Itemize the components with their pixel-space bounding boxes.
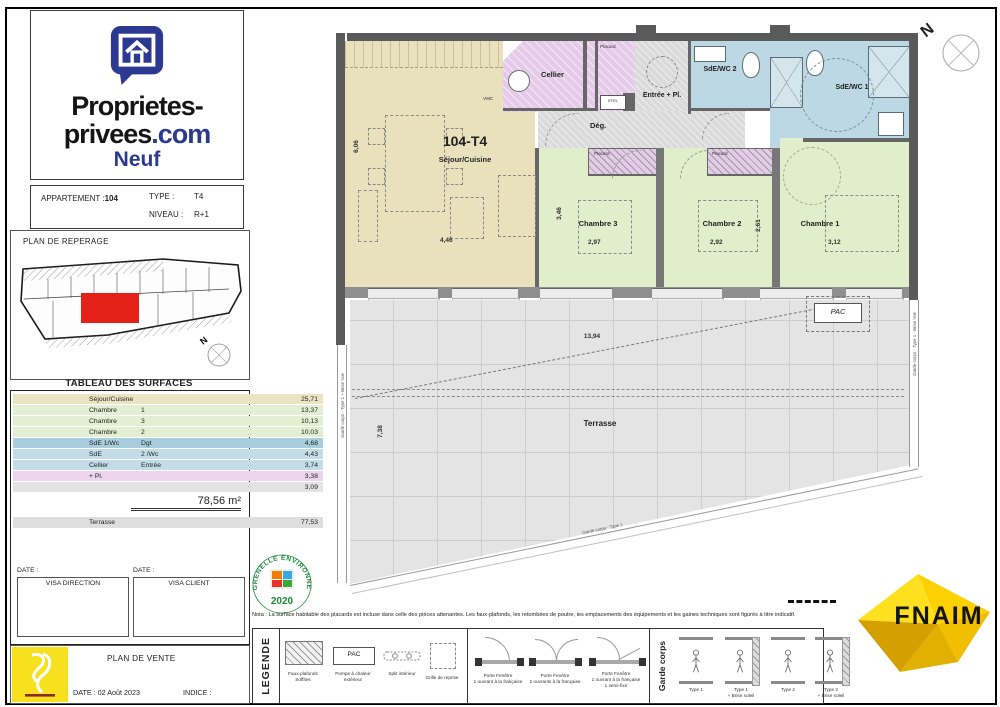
- fnaim-text: FNAIM: [882, 602, 996, 631]
- visa-direction-box: VISA DIRECTION: [17, 577, 129, 637]
- location-plan-title: PLAN DE REPERAGE: [23, 237, 109, 246]
- brise-post: [752, 637, 760, 686]
- unit-highlight: [81, 293, 139, 323]
- house-bubble-icon: [108, 23, 166, 87]
- logo-line2-main: privees: [64, 119, 152, 149]
- wall-int: [803, 138, 909, 142]
- terrace-width-dim: 13,94: [572, 333, 612, 340]
- pf1-arc: [485, 637, 510, 662]
- legend-title: LEGENDE: [260, 637, 272, 695]
- terrace-dash-line: [352, 396, 904, 397]
- mini-north-arrow: N: [198, 335, 230, 366]
- vmc-label: VMC: [483, 96, 493, 101]
- legend-box: LEGENDE Faux-plafondsSoffites PAC Pompe …: [252, 628, 824, 704]
- vent-shaft: [636, 25, 656, 33]
- gc-person: [690, 647, 702, 682]
- pf2-label: Porte Fenêtre2 ouvrants à la française: [523, 673, 587, 685]
- pf-end: [517, 658, 524, 666]
- vente-date: DATE : 02 Août 2023: [73, 688, 140, 697]
- wall-ch2-ch1: [772, 148, 780, 287]
- pf3-base: [591, 660, 643, 664]
- wall-int: [595, 41, 598, 111]
- vente-cartouche: PLAN DE VENTE DATE : 02 Août 2023 INDICE…: [10, 645, 250, 704]
- pf-end: [589, 658, 596, 666]
- surface-row: SdE2 /Wc4,43: [13, 449, 323, 459]
- grille-legend-label: Grille de reprise: [418, 675, 466, 681]
- gc-person: [824, 647, 836, 682]
- deg-label: Dég.: [590, 121, 626, 130]
- chambre1-label: Chambre 1: [788, 219, 852, 228]
- pf-end: [575, 658, 582, 666]
- wall-int: [503, 108, 598, 111]
- visa-client-date-label: DATE :: [133, 567, 154, 574]
- visa-direction-date-label: DATE :: [17, 567, 38, 574]
- visa-client-label: VISA CLIENT: [134, 578, 244, 587]
- terrasse-row: Terrasse77,53: [13, 517, 323, 528]
- surface-row: SdE 1/WcDgt4,68: [13, 438, 323, 448]
- surfaces-title: TABLEAU DES SURFACES: [10, 378, 248, 389]
- wardrobe: [358, 190, 378, 242]
- gc-title: Garde corps: [657, 641, 667, 691]
- sink: [694, 46, 726, 62]
- gc-rail: [679, 637, 713, 640]
- wall-top: [347, 33, 918, 41]
- logo-line2-accent: .com: [151, 119, 210, 149]
- pf3-fixed-leaf: [619, 648, 641, 660]
- cellier-label: Cellier: [520, 70, 585, 79]
- shower: [770, 57, 803, 108]
- sejour-h-dim: 6,06: [353, 140, 360, 153]
- apartment-number: APPARTEMENT :104: [41, 194, 118, 203]
- gc-person: [734, 647, 746, 682]
- pf-end: [639, 658, 646, 666]
- entree-label: Entrée + Pl.: [630, 92, 694, 99]
- surface-row: Séjour/Cuisine25,71: [13, 394, 323, 404]
- grille-glyph: [430, 643, 456, 669]
- gc2-label: Type 1+ Brise soleil: [715, 687, 767, 699]
- location-plan-box: PLAN DE REPERAGE: [10, 230, 250, 380]
- wall-left: [336, 33, 345, 345]
- location-mini-plan: N: [13, 249, 247, 382]
- chair: [446, 168, 463, 185]
- ch3-h-dim: 3,46: [556, 207, 563, 220]
- architect-logo: [12, 647, 68, 701]
- stamp-year: 2020: [271, 596, 294, 607]
- surfaces-table: Séjour/Cuisine25,71 Chambre113,37 Chambr…: [10, 390, 250, 645]
- wheelchair-circle: [646, 56, 678, 88]
- apartment-info-box: APPARTEMENT :104 TYPE :T4 NIVEAU :R+1: [30, 185, 244, 229]
- rail-left-label: Garde corps - Type 1 + Brise Vue: [340, 373, 345, 438]
- sejour-w-dim: 4,46: [440, 237, 453, 244]
- kitchen-island: [450, 197, 484, 239]
- sde2-label: SdE/WC 2: [692, 66, 748, 73]
- legend-divider: [467, 629, 468, 703]
- rail-left: Garde corps - Type 1 + Brise Vue: [337, 345, 347, 583]
- surface-row: CellierEntrée3,74: [13, 460, 323, 470]
- ch1-w-dim: 3,12: [828, 239, 841, 246]
- pf2-arc: [535, 639, 557, 661]
- unit-label: 104-T4: [395, 133, 535, 149]
- gc-person: [782, 647, 794, 682]
- chair: [368, 128, 385, 145]
- ch2-h-dim: 2,61: [755, 219, 762, 232]
- visa-direction-label: VISA DIRECTION: [18, 578, 128, 587]
- surface-row: 3,09: [13, 482, 323, 492]
- etel-label: ETEL: [601, 96, 625, 103]
- wall-ch3-ch2: [656, 148, 664, 287]
- pac-unit: PAC: [814, 303, 862, 323]
- door-swing-circle: [783, 147, 841, 205]
- terrace-dash-line: [352, 389, 904, 390]
- sejour-label: Séjour/Cuisine: [395, 155, 535, 164]
- placard-label: Placard: [600, 44, 616, 49]
- etel-box: ETEL: [600, 95, 626, 110]
- turning-circle: [800, 58, 874, 132]
- vent-shaft: [770, 25, 790, 33]
- cellier-corner: [503, 41, 523, 61]
- nota-text: Nota : La surface habitable des placards…: [252, 612, 862, 618]
- terrace-height-dim: 7,38: [377, 425, 384, 438]
- vente-indice: INDICE :: [183, 688, 211, 697]
- fnaim-logo: FNAIM: [840, 572, 996, 674]
- pf3-arc: [597, 637, 620, 660]
- pf-end: [475, 658, 482, 666]
- visa-client-box: VISA CLIENT: [133, 577, 245, 637]
- gc-rail: [771, 637, 805, 640]
- legend-divider: [649, 629, 650, 703]
- pac-label: PAC: [815, 304, 861, 316]
- grenelle-stamp: GRENELLE ENVIRONNEMENT 2020: [250, 550, 314, 616]
- pf1-label: Porte Fenêtre1 ouvrant à la française: [467, 673, 529, 685]
- chambre2-label: Chambre 2: [690, 219, 754, 228]
- surface-row: + Pl.3,38: [13, 471, 323, 481]
- apartment-level: NIVEAU :R+1: [149, 210, 209, 219]
- svg-text:N: N: [198, 335, 209, 347]
- chambre3-label: Chambre 3: [566, 219, 630, 228]
- surface-row: Chambre210,03: [13, 427, 323, 437]
- logo-line3: Neuf: [31, 148, 243, 172]
- agency-logo-box: Proprietes- privees.com Neuf: [30, 10, 244, 180]
- toilet: [742, 52, 760, 78]
- surface-total: 78,56 m²: [131, 495, 241, 511]
- terrasse-label: Terrasse: [560, 419, 640, 428]
- gc-title-cell: Garde corps: [651, 629, 673, 703]
- faux-plafond-swatch: [285, 641, 323, 665]
- placard-label: Placard: [712, 151, 728, 156]
- gc1-label: Type 1: [673, 687, 719, 693]
- pf2-base: [531, 660, 581, 664]
- split-glyph: [383, 649, 421, 661]
- rail-right-label: Garde corps - Type 1 - Brise Vue: [912, 312, 917, 376]
- ch3-w-dim: 2,97: [588, 239, 601, 246]
- legend-title-cell: LEGENDE: [253, 629, 280, 703]
- legend-pac-box: PAC: [333, 647, 375, 665]
- placard-label: Placard: [594, 151, 610, 156]
- bathroom-cabinet: [878, 112, 904, 136]
- ch2-w-dim: 2,92: [710, 239, 723, 246]
- dash-legend-symbol: [788, 600, 836, 603]
- logo-line1: Proprietes-: [31, 91, 243, 122]
- pf3-label: Porte Fenêtre1 ouvrant à la française1 s…: [585, 671, 647, 689]
- wall-int: [688, 41, 691, 114]
- gc4-label: Type 2+ Brise soleil: [805, 687, 857, 699]
- vente-title: PLAN DE VENTE: [107, 654, 176, 663]
- rail-right: Garde corps - Type 1 - Brise Vue: [909, 300, 919, 467]
- north-compass-icon: [941, 33, 981, 73]
- wall-right: [909, 33, 918, 300]
- surface-row: Chambre310,13: [13, 416, 323, 426]
- wall-int: [688, 108, 770, 111]
- surface-row: Chambre113,37: [13, 405, 323, 415]
- chair: [368, 168, 385, 185]
- pf-end: [529, 658, 536, 666]
- apartment-type: TYPE :T4: [149, 192, 203, 201]
- kitchen-counter: [498, 175, 536, 237]
- sde1-label: SdE/WC 1: [822, 84, 882, 91]
